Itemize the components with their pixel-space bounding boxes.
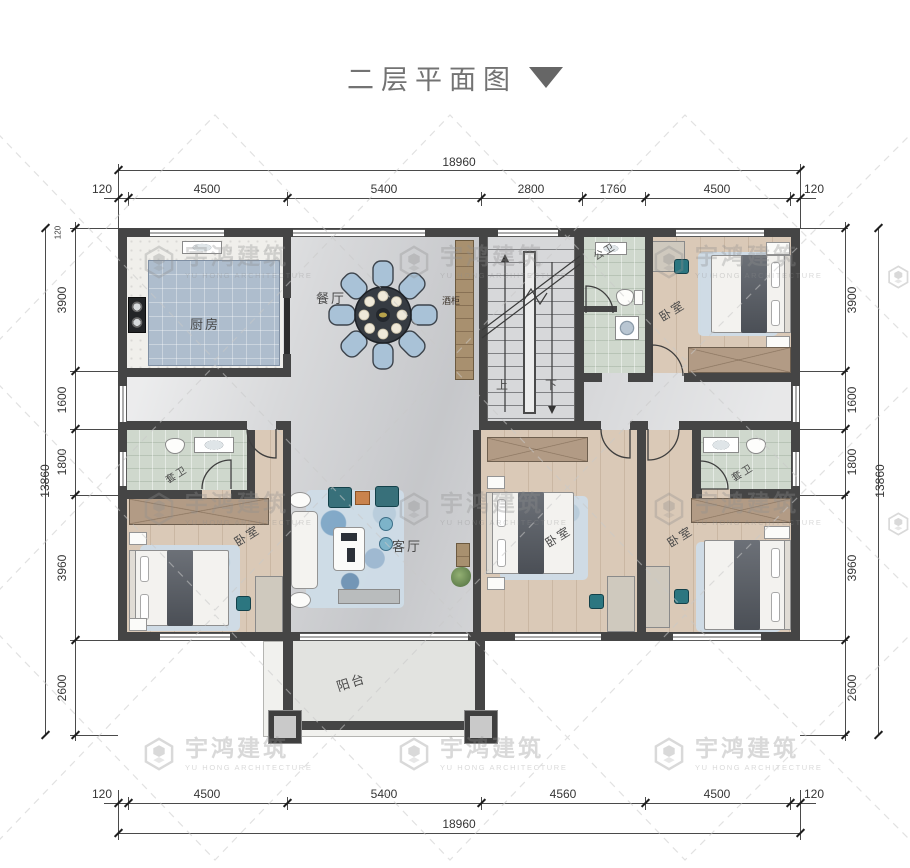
room-label-dining: 餐厅 [316, 288, 346, 307]
room-label-wine-cabinet: 酒柜 [442, 294, 460, 307]
dim-bottom-total: 18960 [118, 817, 800, 831]
dim-right-total: 13860 [873, 459, 887, 503]
room-label-living: 客厅 [392, 536, 422, 555]
balcony-column [269, 711, 301, 743]
title-text: 二层平面图 [347, 58, 517, 97]
title-triangle-icon [529, 67, 563, 88]
dim-left-total: 13860 [38, 459, 52, 503]
room-label-kitchen: 厨房 [190, 314, 220, 333]
dim-top-total: 18960 [118, 155, 800, 169]
stairs-down-label: 下 [545, 376, 557, 393]
page-title: 二层平面图 [0, 58, 910, 97]
door-arcs-overlay [0, 0, 910, 868]
balcony-column [465, 711, 497, 743]
stairs-up-label: 上 [496, 376, 508, 393]
floor-plan-canvas: 二层平面图 18960 120 4500 5400 2800 1760 4500… [0, 0, 910, 868]
